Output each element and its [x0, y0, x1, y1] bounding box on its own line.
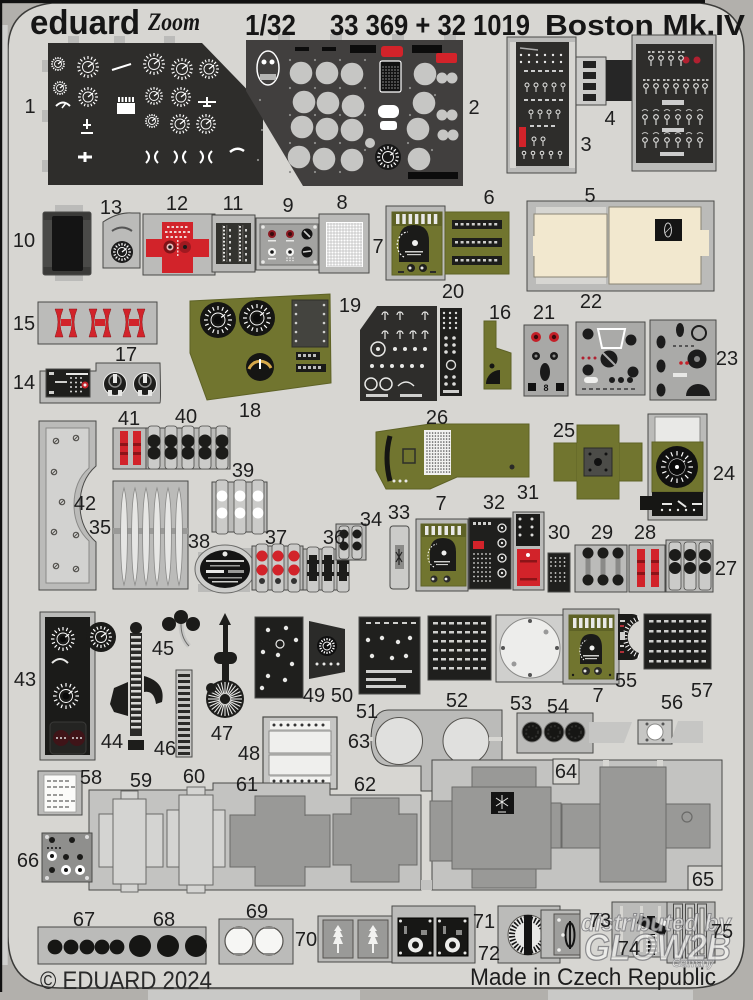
svg-text:18: 18 — [239, 400, 261, 422]
svg-text:58: 58 — [80, 767, 102, 789]
svg-text:35: 35 — [89, 517, 111, 539]
svg-text:21: 21 — [533, 302, 555, 324]
svg-text:7: 7 — [372, 236, 383, 258]
svg-text:38: 38 — [188, 531, 210, 553]
svg-text:55: 55 — [615, 670, 637, 692]
svg-text:Germany: Germany — [672, 956, 715, 970]
svg-text:41: 41 — [118, 408, 140, 430]
svg-text:15: 15 — [13, 313, 35, 335]
svg-text:33 369 + 32 1019: 33 369 + 32 1019 — [330, 10, 530, 42]
svg-text:50: 50 — [331, 685, 353, 707]
svg-text:29: 29 — [591, 522, 613, 544]
svg-text:7: 7 — [592, 685, 603, 707]
svg-text:60: 60 — [183, 766, 205, 788]
svg-text:70: 70 — [295, 929, 317, 951]
svg-text:46: 46 — [154, 738, 176, 760]
svg-text:8: 8 — [336, 192, 347, 214]
svg-text:49: 49 — [303, 685, 325, 707]
svg-text:48: 48 — [238, 743, 260, 765]
svg-text:51: 51 — [356, 701, 378, 723]
svg-text:59: 59 — [130, 770, 152, 792]
svg-text:40: 40 — [175, 406, 197, 428]
svg-text:30: 30 — [548, 522, 570, 544]
svg-text:25: 25 — [553, 420, 575, 442]
svg-text:64: 64 — [555, 761, 577, 783]
svg-text:67: 67 — [73, 909, 95, 931]
svg-text:14: 14 — [13, 372, 35, 394]
svg-text:69: 69 — [246, 901, 268, 923]
svg-text:© EDUARD 2024: © EDUARD 2024 — [40, 967, 212, 995]
svg-text:42: 42 — [74, 493, 96, 515]
svg-text:53: 53 — [510, 693, 532, 715]
svg-text:11: 11 — [223, 193, 244, 215]
svg-text:47: 47 — [211, 723, 233, 745]
svg-text:5: 5 — [584, 185, 595, 207]
svg-text:Zoom: Zoom — [147, 9, 200, 36]
svg-text:31: 31 — [517, 482, 539, 504]
svg-text:16: 16 — [489, 302, 511, 324]
svg-text:75: 75 — [711, 921, 733, 943]
svg-text:7: 7 — [435, 493, 446, 515]
svg-text:6: 6 — [483, 187, 494, 209]
svg-text:61: 61 — [236, 774, 258, 796]
svg-text:26: 26 — [426, 407, 448, 429]
svg-text:32: 32 — [483, 492, 505, 514]
svg-text:9: 9 — [282, 195, 293, 217]
svg-text:34: 34 — [360, 509, 382, 531]
svg-text:44: 44 — [101, 731, 123, 753]
svg-text:43: 43 — [14, 669, 36, 691]
svg-text:37: 37 — [265, 527, 287, 549]
svg-text:10: 10 — [13, 230, 35, 252]
svg-text:65: 65 — [692, 869, 714, 891]
svg-text:13: 13 — [100, 197, 122, 219]
svg-text:36: 36 — [323, 527, 345, 549]
svg-text:63: 63 — [348, 731, 370, 753]
svg-text:62: 62 — [354, 774, 376, 796]
svg-text:22: 22 — [580, 291, 602, 313]
svg-text:17: 17 — [115, 344, 137, 366]
svg-text:72: 72 — [478, 943, 500, 965]
svg-text:71: 71 — [473, 911, 495, 933]
svg-text:19: 19 — [339, 295, 361, 317]
svg-text:12: 12 — [166, 193, 188, 215]
svg-text:1: 1 — [24, 96, 35, 118]
svg-text:1/32: 1/32 — [245, 10, 296, 42]
svg-text:66: 66 — [17, 850, 39, 872]
svg-text:57: 57 — [691, 680, 713, 702]
svg-text:33: 33 — [388, 502, 410, 524]
svg-text:68: 68 — [153, 909, 175, 931]
svg-text:45: 45 — [152, 638, 174, 660]
svg-text:4: 4 — [604, 108, 615, 130]
svg-text:24: 24 — [713, 463, 735, 485]
svg-text:52: 52 — [446, 690, 468, 712]
svg-text:23: 23 — [716, 348, 738, 370]
svg-text:27: 27 — [715, 558, 737, 580]
svg-text:56: 56 — [661, 692, 683, 714]
svg-text:28: 28 — [634, 522, 656, 544]
svg-text:3: 3 — [580, 134, 591, 156]
svg-text:73: 73 — [589, 910, 611, 932]
svg-text:74: 74 — [618, 938, 640, 960]
svg-text:39: 39 — [232, 460, 254, 482]
svg-text:20: 20 — [442, 281, 464, 303]
svg-text:2: 2 — [468, 97, 479, 119]
svg-text:54: 54 — [547, 696, 569, 718]
svg-text:8: 8 — [543, 383, 548, 393]
